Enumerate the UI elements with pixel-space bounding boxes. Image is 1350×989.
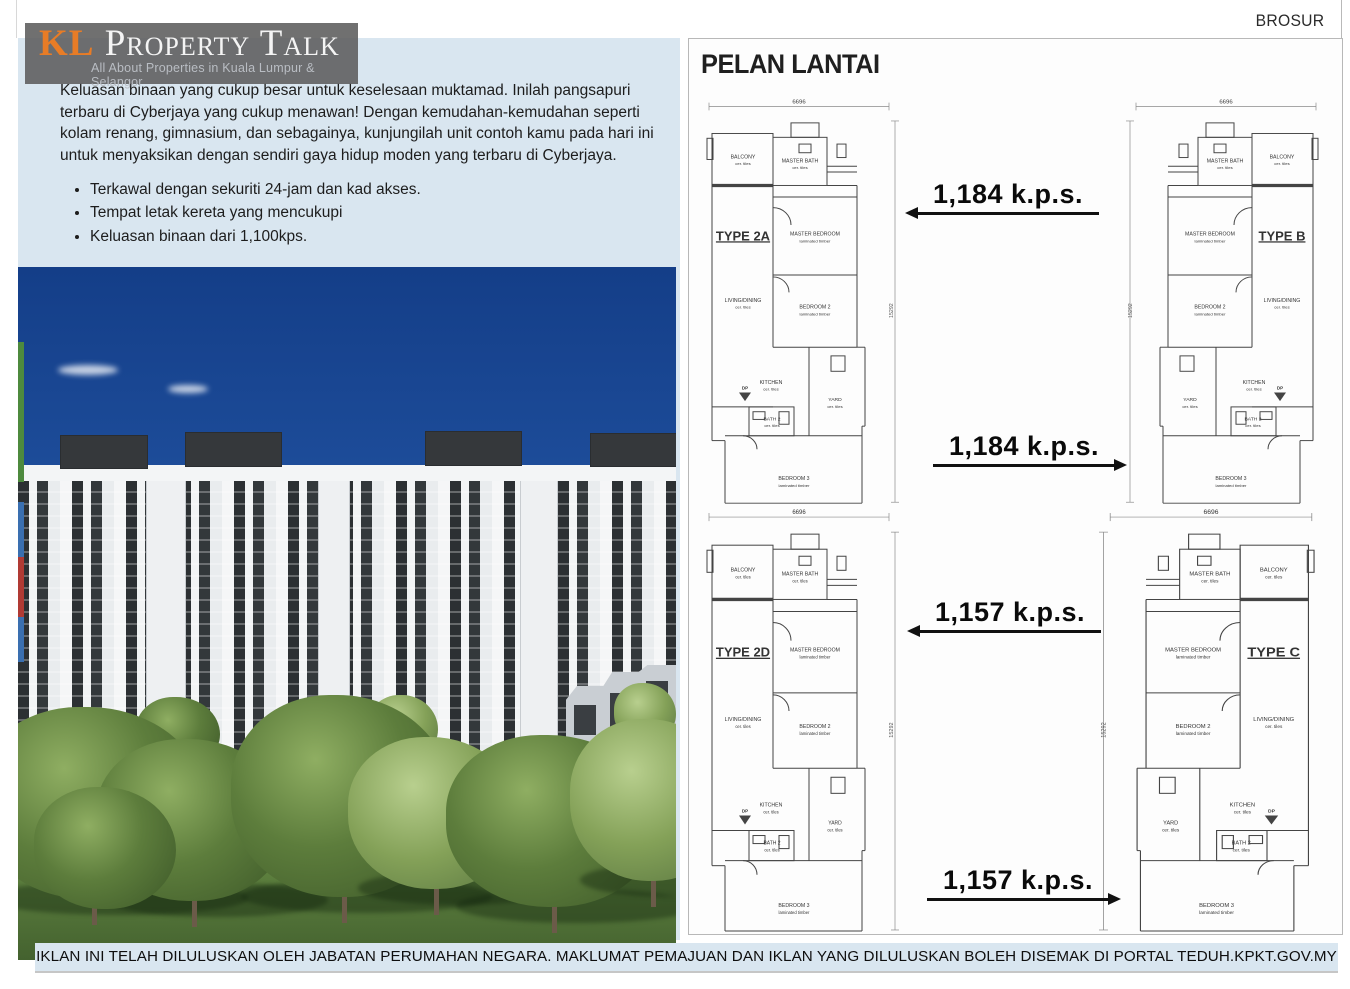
- building-photo: [18, 267, 676, 960]
- svg-text:cer. tiles: cer. tiles: [1182, 404, 1197, 409]
- svg-text:cer. tiles: cer. tiles: [1246, 387, 1261, 392]
- tower-roof-cap: [60, 435, 148, 469]
- area-size-label: 1,157 k.p.s.: [911, 865, 1125, 901]
- svg-text:6696: 6696: [1219, 100, 1233, 106]
- brochure-page: BROSUR KL Property Talk All About Proper…: [0, 0, 1350, 989]
- svg-text:TYPE 2D: TYPE 2D: [716, 645, 770, 660]
- svg-text:cer. tiles: cer. tiles: [735, 724, 750, 729]
- svg-text:cer. tiles: cer. tiles: [1265, 724, 1283, 729]
- svg-text:KITCHEN: KITCHEN: [1243, 380, 1266, 386]
- logo-name: Property Talk: [105, 23, 340, 64]
- svg-text:YARD: YARD: [1183, 397, 1197, 403]
- svg-text:MASTER BEDROOM: MASTER BEDROOM: [790, 232, 840, 238]
- svg-text:cer. tiles: cer. tiles: [792, 578, 807, 583]
- svg-text:BEDROOM 3: BEDROOM 3: [778, 903, 809, 909]
- svg-text:MASTER BEDROOM: MASTER BEDROOM: [1165, 648, 1221, 654]
- svg-text:cer. tiles: cer. tiles: [764, 423, 779, 428]
- tree-canopy: [34, 787, 176, 909]
- svg-text:TYPE B: TYPE B: [1259, 229, 1306, 244]
- svg-text:YARD: YARD: [1163, 821, 1178, 827]
- tower-gap: [520, 479, 558, 771]
- svg-text:DP: DP: [742, 808, 748, 813]
- svg-text:cer. tiles: cer. tiles: [827, 404, 842, 409]
- svg-text:KITCHEN: KITCHEN: [760, 380, 783, 386]
- svg-text:cer. tiles: cer. tiles: [1274, 161, 1289, 166]
- svg-text:BEDROOM 2: BEDROOM 2: [1194, 305, 1225, 311]
- floorplan-svg: 669615292BALCONYcer. tilesMASTER BATHcer…: [699, 94, 899, 508]
- svg-text:cer. tiles: cer. tiles: [1265, 575, 1283, 580]
- svg-text:LIVING/DINING: LIVING/DINING: [1264, 298, 1301, 304]
- logo-wordmark: KL Property Talk: [39, 23, 358, 65]
- logo-tagline: All About Properties in Kuala Lumpur & S…: [39, 61, 358, 89]
- svg-text:MASTER BATH: MASTER BATH: [782, 571, 819, 577]
- svg-text:15292: 15292: [1102, 722, 1108, 737]
- svg-text:15292: 15292: [889, 303, 895, 318]
- svg-text:BEDROOM 2: BEDROOM 2: [799, 305, 830, 311]
- svg-text:BEDROOM 3: BEDROOM 3: [778, 476, 809, 482]
- svg-text:laminated timber: laminated timber: [800, 731, 831, 736]
- floorplan-svg: 669615292BALCONYcer. tilesMASTER BATHcer…: [699, 504, 899, 936]
- svg-text:DP: DP: [1268, 809, 1276, 815]
- left-content-panel: KL Property Talk All About Properties in…: [18, 38, 680, 940]
- svg-text:cer. tiles: cer. tiles: [1217, 165, 1232, 170]
- svg-text:laminated timber: laminated timber: [779, 910, 810, 915]
- svg-text:cer. tiles: cer. tiles: [1233, 848, 1251, 853]
- svg-text:BEDROOM 2: BEDROOM 2: [799, 724, 830, 730]
- clubhouse-window: [574, 705, 596, 735]
- page-edge-line: [16, 0, 17, 38]
- area-kps-text: 1,157 k.p.s.: [903, 597, 1117, 628]
- svg-text:BALCONY: BALCONY: [1270, 155, 1295, 161]
- svg-text:MASTER BATH: MASTER BATH: [1207, 158, 1244, 164]
- svg-text:15292: 15292: [1128, 303, 1134, 318]
- svg-text:BEDROOM 3: BEDROOM 3: [1199, 903, 1234, 909]
- document-type-label: BROSUR: [1255, 12, 1324, 31]
- svg-text:BALCONY: BALCONY: [1260, 568, 1288, 574]
- cloud: [58, 365, 118, 375]
- svg-text:KITCHEN: KITCHEN: [760, 802, 783, 808]
- svg-text:cer. tiles: cer. tiles: [1201, 579, 1219, 584]
- svg-text:BEDROOM 3: BEDROOM 3: [1215, 476, 1246, 482]
- intro-bullet: Terkawal dengan sekuriti 24-jam dan kad …: [90, 179, 664, 201]
- area-size-label: 1,184 k.p.s.: [917, 431, 1131, 467]
- right-arrow-icon: [933, 464, 1115, 467]
- svg-text:laminated timber: laminated timber: [800, 655, 831, 660]
- floorplan-svg: 669615292BALCONYcer. tilesMASTER BATHcer…: [1126, 94, 1326, 508]
- svg-text:BALCONY: BALCONY: [731, 567, 756, 573]
- svg-text:BEDROOM 2: BEDROOM 2: [1176, 724, 1211, 730]
- area-kps-text: 1,157 k.p.s.: [911, 865, 1125, 896]
- svg-text:laminated timber: laminated timber: [1216, 483, 1248, 488]
- feature-bullet-list: Terkawal dengan sekuriti 24-jam dan kad …: [60, 179, 664, 248]
- svg-text:YARD: YARD: [828, 397, 842, 403]
- svg-text:MASTER BATH: MASTER BATH: [782, 158, 819, 164]
- svg-text:6696: 6696: [792, 100, 806, 106]
- svg-text:cer. tiles: cer. tiles: [827, 828, 842, 833]
- svg-text:BATH 2: BATH 2: [1244, 416, 1261, 422]
- svg-text:BATH 2: BATH 2: [1232, 841, 1251, 847]
- intro-paragraph: Keluasan binaan yang cukup besar untuk k…: [60, 80, 664, 166]
- svg-text:BALCONY: BALCONY: [731, 155, 756, 161]
- svg-text:cer. tiles: cer. tiles: [1274, 305, 1289, 310]
- svg-text:cer. tiles: cer. tiles: [735, 305, 750, 310]
- floorplan-type-c: 669615292BALCONYcer. tilesMASTER BATHcer…: [1099, 504, 1323, 936]
- tower-roof-cap: [425, 431, 522, 466]
- svg-text:cer. tiles: cer. tiles: [763, 387, 778, 392]
- floorplan-panel: PELAN LANTAI 669615292BALCONYcer. tilesM…: [688, 38, 1343, 935]
- left-arrow-icon: [919, 630, 1101, 633]
- svg-text:laminated timber: laminated timber: [1176, 655, 1211, 660]
- svg-text:MASTER BEDROOM: MASTER BEDROOM: [790, 648, 840, 654]
- kl-property-talk-logo: KL Property Talk All About Properties in…: [25, 23, 358, 84]
- edge-building-sliver: [18, 557, 24, 617]
- svg-text:laminated timber: laminated timber: [800, 312, 832, 317]
- edge-building-sliver: [18, 342, 24, 482]
- area-size-label: 1,184 k.p.s.: [901, 179, 1115, 215]
- svg-text:laminated timber: laminated timber: [800, 238, 832, 243]
- svg-text:6696: 6696: [1204, 509, 1219, 516]
- floorplan-type-2a: 669615292BALCONYcer. tilesMASTER BATHcer…: [699, 94, 899, 508]
- svg-text:laminated timber: laminated timber: [1176, 731, 1211, 736]
- svg-text:TYPE C: TYPE C: [1247, 644, 1300, 659]
- floorplan-type-2d: 669615292BALCONYcer. tilesMASTER BATHcer…: [699, 504, 899, 936]
- svg-text:cer. tiles: cer. tiles: [792, 165, 807, 170]
- edge-building-sliver: [18, 617, 24, 662]
- logo-kl-prefix: KL: [39, 23, 94, 64]
- svg-text:BATH 2: BATH 2: [763, 416, 780, 422]
- cloud: [168, 385, 208, 393]
- intro-text-block: Keluasan binaan yang cukup besar untuk k…: [60, 80, 664, 249]
- svg-text:TYPE 2A: TYPE 2A: [716, 229, 770, 244]
- svg-text:laminated timber: laminated timber: [779, 483, 811, 488]
- edge-building-sliver: [18, 502, 24, 557]
- svg-text:laminated timber: laminated timber: [1199, 910, 1234, 915]
- svg-text:YARD: YARD: [828, 820, 842, 826]
- svg-text:LIVING/DINING: LIVING/DINING: [725, 298, 762, 304]
- floorplan-section-title: PELAN LANTAI: [701, 49, 880, 80]
- svg-text:KITCHEN: KITCHEN: [1230, 803, 1256, 809]
- svg-text:cer. tiles: cer. tiles: [764, 848, 779, 853]
- right-arrow-icon: [927, 898, 1109, 901]
- page-edge-line: [1341, 0, 1342, 40]
- area-size-label: 1,157 k.p.s.: [903, 597, 1117, 633]
- area-kps-text: 1,184 k.p.s.: [901, 179, 1115, 210]
- svg-text:cer. tiles: cer. tiles: [763, 809, 778, 814]
- area-kps-text: 1,184 k.p.s.: [917, 431, 1131, 462]
- svg-text:cer. tiles: cer. tiles: [1245, 423, 1260, 428]
- svg-text:BATH 2: BATH 2: [763, 841, 780, 847]
- svg-text:MASTER BATH: MASTER BATH: [1189, 572, 1230, 578]
- svg-text:cer. tiles: cer. tiles: [1162, 828, 1180, 833]
- tower-roof-cap: [590, 433, 676, 467]
- floorplan-type-b: 669615292BALCONYcer. tilesMASTER BATHcer…: [1126, 94, 1326, 508]
- left-arrow-icon: [917, 212, 1099, 215]
- svg-text:laminated timber: laminated timber: [1195, 238, 1227, 243]
- svg-text:DP: DP: [742, 386, 748, 391]
- svg-text:cer. tiles: cer. tiles: [735, 574, 750, 579]
- svg-text:cer. tiles: cer. tiles: [1234, 810, 1252, 815]
- svg-text:6696: 6696: [792, 510, 806, 516]
- intro-bullet: Keluasan binaan dari 1,100kps.: [90, 226, 664, 248]
- svg-text:MASTER BEDROOM: MASTER BEDROOM: [1185, 232, 1235, 238]
- svg-text:DP: DP: [1277, 386, 1283, 391]
- approval-disclaimer: IKLAN INI TELAH DILULUSKAN OLEH JABATAN …: [35, 943, 1338, 973]
- svg-text:15292: 15292: [889, 722, 895, 737]
- intro-bullet: Tempat letak kereta yang mencukupi: [90, 202, 664, 224]
- tower-roof-cap: [185, 432, 282, 467]
- svg-text:LIVING/DINING: LIVING/DINING: [725, 717, 762, 723]
- svg-text:cer. tiles: cer. tiles: [735, 161, 750, 166]
- svg-text:LIVING/DINING: LIVING/DINING: [1253, 717, 1294, 723]
- svg-text:laminated timber: laminated timber: [1195, 312, 1227, 317]
- floorplan-svg: 669615292BALCONYcer. tilesMASTER BATHcer…: [1099, 504, 1323, 936]
